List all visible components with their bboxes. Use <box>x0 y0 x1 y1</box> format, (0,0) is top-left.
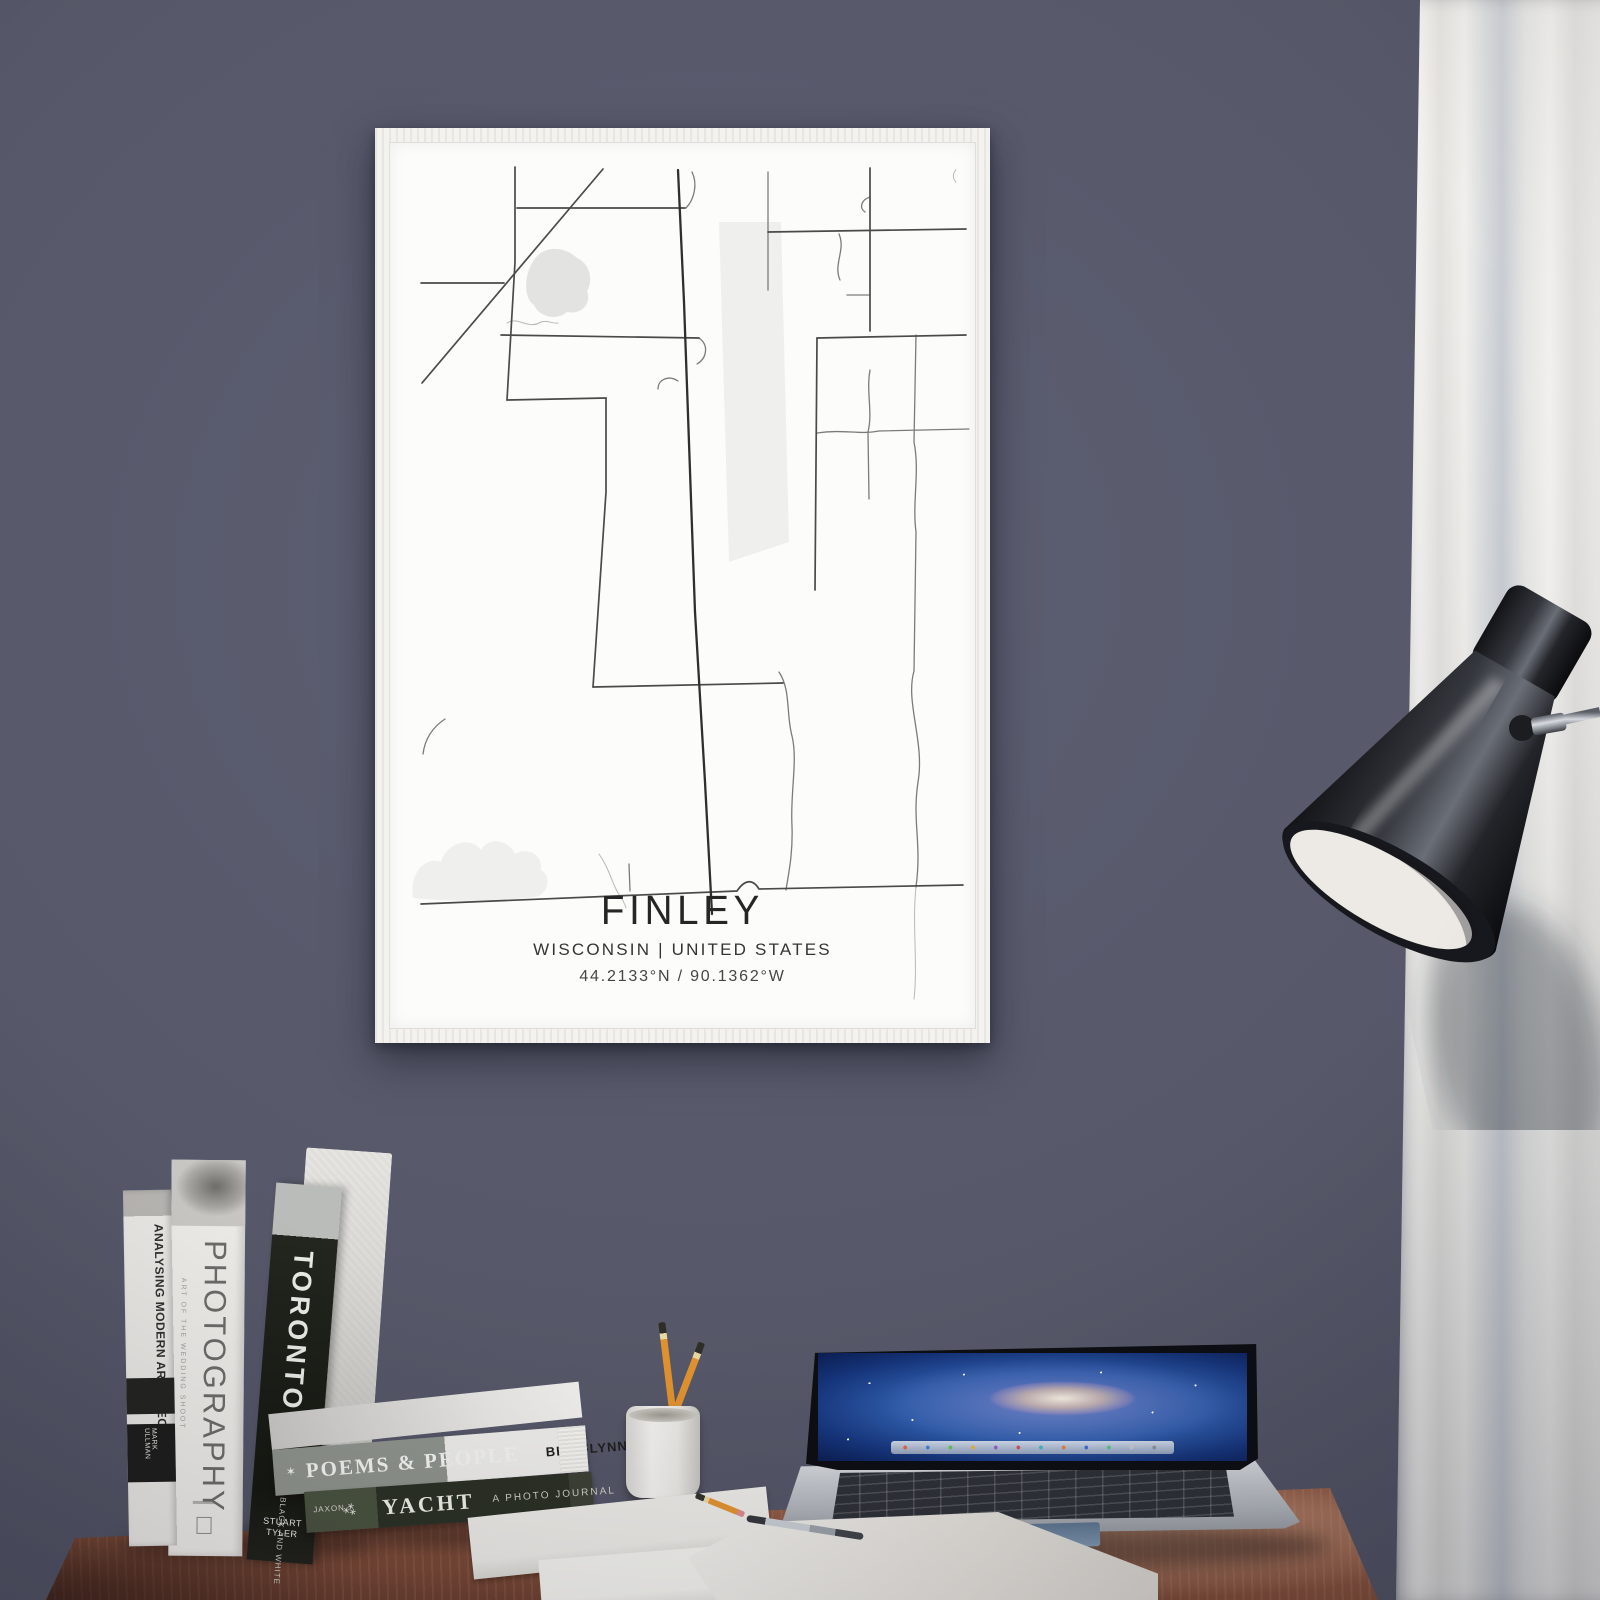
book-photography-small-text <box>193 1501 215 1504</box>
poster-paper: FINLEY WISCONSIN | UNITED STATES 44.2133… <box>389 142 976 1029</box>
laptop-dock <box>891 1441 1174 1454</box>
quill-icon: ⁂ <box>342 1500 358 1519</box>
pencil-cup-rim <box>629 1408 697 1422</box>
book-photography-subtitle: ART OF THE WEDDING SHOOT <box>178 1278 187 1508</box>
book-photography-title: PHOTOGRAPHY <box>194 1240 233 1540</box>
book-poems-title: POEMS & PEOPLE <box>305 1441 521 1483</box>
lamp-joint <box>1509 715 1535 741</box>
star-icon: ✶ <box>285 1464 296 1479</box>
poster-frame: FINLEY WISCONSIN | UNITED STATES 44.2133… <box>375 128 990 1043</box>
laptop-screen <box>806 1344 1258 1470</box>
book-photography-publisher-logo <box>196 1517 211 1534</box>
book-photography: PHOTOGRAPHY ART OF THE WEDDING SHOOT <box>168 1160 245 1557</box>
poster-coordinates: 44.2133°N / 90.1362°W <box>389 968 976 986</box>
book-analysing: ANALYSING MODERN ARCHITECTURE MARK ULLMA… <box>123 1190 177 1547</box>
book-poems-pages <box>557 1425 589 1473</box>
book-photography-cover-art <box>171 1160 246 1227</box>
poster-subtitle: WISCONSIN | UNITED STATES <box>389 940 976 960</box>
room-scene: FINLEY WISCONSIN | UNITED STATES 44.2133… <box>0 0 1600 1600</box>
book-yacht-title: YACHT <box>381 1488 475 1520</box>
poster-text-block: FINLEY WISCONSIN | UNITED STATES 44.2133… <box>389 890 976 986</box>
laptop-keyboard <box>832 1468 1234 1522</box>
book-yacht-author: JAXON <box>313 1503 345 1514</box>
pencil-cup <box>626 1406 700 1498</box>
book-analysing-author-box: MARK ULLMAN <box>127 1424 176 1483</box>
laptop-wallpaper-galaxy <box>818 1353 1247 1461</box>
book-analysing-author: MARK ULLMAN <box>143 1428 158 1478</box>
lamp-head <box>1262 550 1600 990</box>
poster-title: FINLEY <box>407 890 959 931</box>
desk-lamp <box>1210 550 1600 1130</box>
book-analysing-band <box>126 1378 175 1415</box>
